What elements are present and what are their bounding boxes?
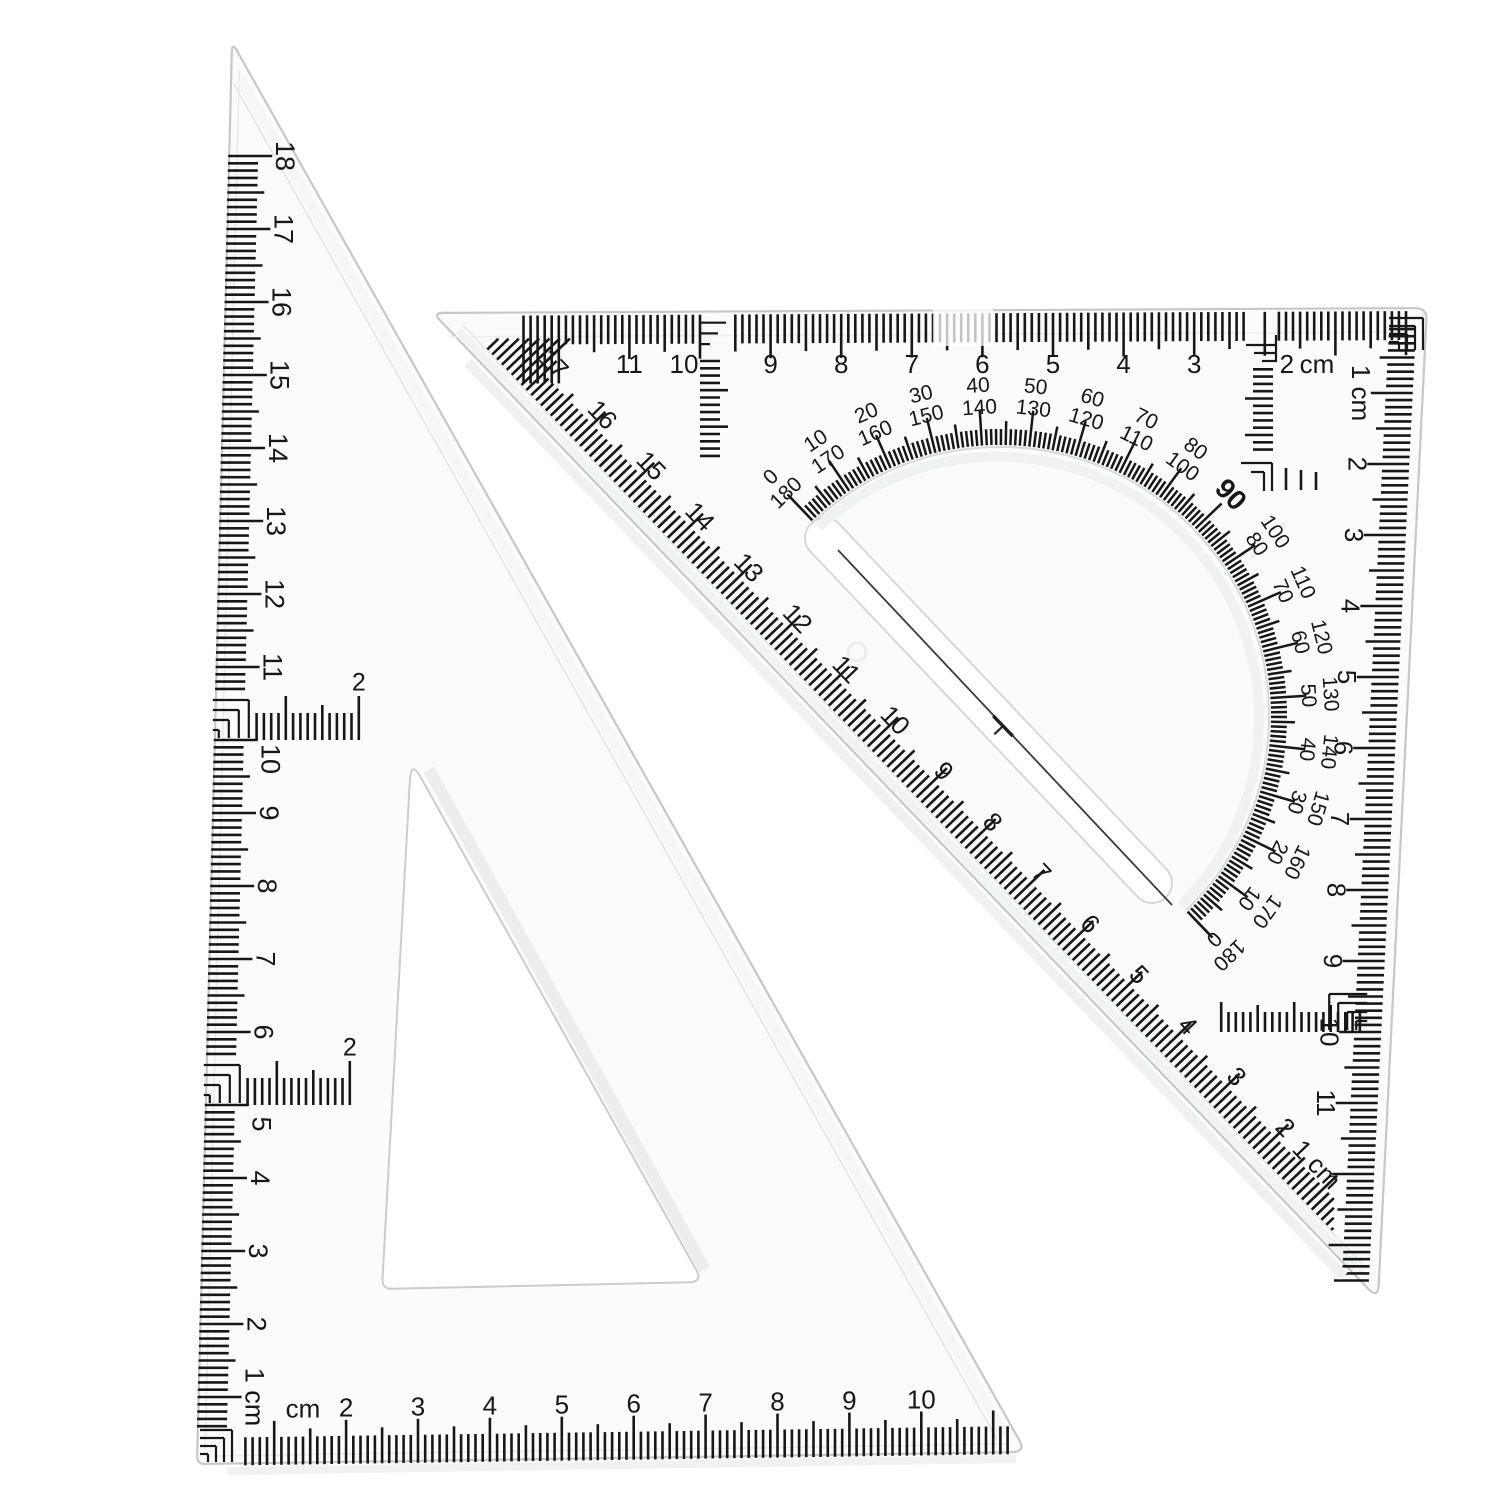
svg-text:8: 8 bbox=[1321, 883, 1351, 897]
svg-text:10: 10 bbox=[907, 1384, 936, 1414]
svg-text:17: 17 bbox=[268, 214, 298, 244]
svg-text:15: 15 bbox=[265, 360, 295, 390]
svg-text:50: 50 bbox=[1296, 683, 1320, 708]
svg-text:11: 11 bbox=[1311, 1090, 1341, 1117]
svg-text:11: 11 bbox=[257, 653, 287, 681]
svg-text:6: 6 bbox=[248, 1024, 278, 1039]
svg-text:11: 11 bbox=[616, 349, 643, 379]
svg-text:1 cm: 1 cm bbox=[1346, 365, 1376, 421]
svg-text:7: 7 bbox=[1325, 812, 1355, 826]
svg-text:3: 3 bbox=[243, 1243, 273, 1258]
svg-text:10: 10 bbox=[670, 349, 699, 379]
svg-text:9: 9 bbox=[1318, 954, 1348, 968]
svg-text:8: 8 bbox=[252, 878, 282, 893]
svg-text:3: 3 bbox=[1339, 528, 1369, 542]
svg-text:14: 14 bbox=[263, 433, 293, 463]
svg-text:9: 9 bbox=[763, 349, 777, 379]
svg-text:5: 5 bbox=[246, 1116, 276, 1131]
svg-text:4: 4 bbox=[1335, 599, 1365, 613]
svg-text:2: 2 bbox=[352, 669, 366, 697]
svg-text:3: 3 bbox=[411, 1392, 425, 1422]
svg-text:130: 130 bbox=[1015, 396, 1052, 423]
svg-text:6: 6 bbox=[626, 1389, 640, 1419]
svg-text:7: 7 bbox=[905, 349, 919, 379]
svg-text:8: 8 bbox=[834, 349, 848, 379]
svg-text:130: 130 bbox=[1318, 676, 1343, 712]
svg-text:9: 9 bbox=[254, 805, 284, 820]
svg-text:9: 9 bbox=[842, 1385, 856, 1415]
svg-text:2: 2 bbox=[343, 1034, 357, 1062]
svg-text:5: 5 bbox=[1046, 349, 1060, 379]
svg-text:40: 40 bbox=[966, 374, 991, 398]
svg-text:cm: cm bbox=[286, 1393, 321, 1423]
svg-text:140: 140 bbox=[961, 395, 997, 420]
svg-text:13: 13 bbox=[261, 506, 291, 536]
svg-text:2: 2 bbox=[339, 1393, 353, 1423]
svg-text:3: 3 bbox=[1187, 349, 1201, 379]
svg-text:4: 4 bbox=[245, 1170, 275, 1185]
svg-text:40: 40 bbox=[1294, 737, 1319, 763]
svg-text:7: 7 bbox=[698, 1387, 712, 1417]
svg-text:18: 18 bbox=[270, 141, 300, 171]
svg-text:10: 10 bbox=[255, 744, 285, 774]
svg-text:7: 7 bbox=[250, 951, 280, 966]
svg-text:12: 12 bbox=[259, 579, 289, 609]
svg-text:4: 4 bbox=[1116, 349, 1130, 379]
svg-text:16: 16 bbox=[266, 287, 296, 317]
svg-text:2: 2 bbox=[241, 1316, 271, 1331]
svg-text:8: 8 bbox=[770, 1386, 784, 1416]
svg-text:5: 5 bbox=[555, 1390, 569, 1420]
svg-text:1 cm: 1 cm bbox=[239, 1368, 269, 1427]
svg-text:cm: cm bbox=[1300, 349, 1335, 379]
svg-text:2: 2 bbox=[1342, 457, 1372, 471]
svg-text:2: 2 bbox=[1280, 349, 1294, 379]
svg-text:4: 4 bbox=[483, 1391, 497, 1421]
